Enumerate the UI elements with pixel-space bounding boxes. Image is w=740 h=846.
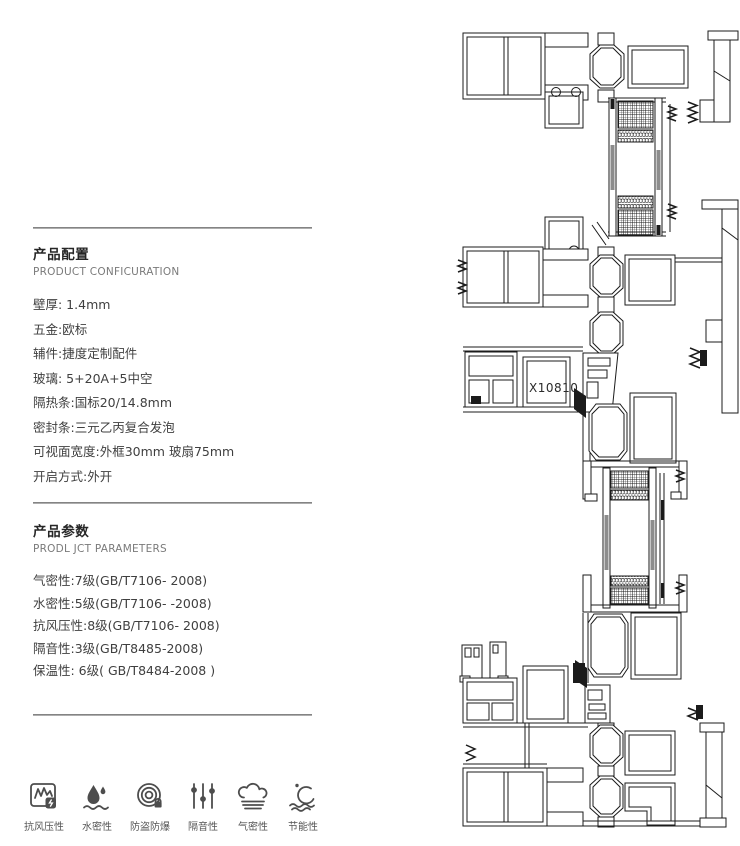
wind-pressure-icon	[27, 779, 61, 813]
glazing-unit-bottom	[583, 461, 687, 612]
feature-air-tightness: 气密性	[236, 779, 270, 833]
param-item-wind-pressure: 抗风压性:8级(GB/T7106- 2008)	[33, 615, 220, 638]
divider-top	[33, 227, 312, 229]
params-list: 气密性:7级(GB/T7106- 2008) 水密性:5级(GB/T7106- …	[33, 570, 220, 683]
divider-middle	[33, 502, 312, 504]
spec-item-glass: 玻璃: 5+20A+5中空	[33, 367, 234, 392]
spec-item-hardware: 五金:欧标	[33, 318, 234, 343]
param-item-heat-insulation: 保温性: 6级( GB/T8484-2008 )	[33, 660, 220, 683]
head-profile-section	[463, 31, 738, 128]
sound-insulation-icon	[186, 779, 220, 813]
window-profile-section-drawing: X10810	[448, 26, 740, 832]
param-item-water-tightness: 水密性:5级(GB/T7106- -2008)	[33, 593, 220, 616]
air-tightness-icon	[236, 779, 270, 813]
feature-label: 隔音性	[188, 818, 218, 833]
sash-bottom-section	[460, 613, 681, 683]
params-section-subtitle: PRODL JCT PARAMETERS	[33, 543, 167, 555]
spec-item-thermal-strip: 隔热条:国标20/14.8mm	[33, 391, 234, 416]
mid-profile-section: X10810	[458, 200, 738, 463]
spec-item-wall-thickness: 壁厚: 1.4mm	[33, 293, 234, 318]
feature-energy-saving: 节能性	[286, 779, 320, 833]
feature-label: 抗风压性	[24, 818, 64, 833]
feature-label: 防盗防爆	[130, 818, 170, 833]
sill-profile-section	[463, 660, 726, 827]
feature-sound-insulation: 隔音性	[186, 779, 220, 833]
feature-icons-row: 抗风压性 水密性 防盗防爆 隔音性	[24, 779, 320, 833]
water-tightness-icon	[80, 779, 114, 813]
feature-label: 节能性	[288, 818, 318, 833]
param-item-sound-insulation: 隔音性:3级(GB/T8485-2008)	[33, 638, 220, 661]
divider-bottom	[33, 714, 312, 716]
params-section-title: 产品参数	[33, 520, 89, 540]
spec-item-visible-width: 可视面宽度:外框30mm 玻扇75mm	[33, 440, 234, 465]
param-item-air-tightness: 气密性:7级(GB/T7106- 2008)	[33, 570, 220, 593]
spec-item-opening-type: 开启方式:外开	[33, 465, 234, 490]
energy-saving-icon	[286, 779, 320, 813]
feature-label: 水密性	[82, 818, 112, 833]
anti-theft-icon	[133, 779, 167, 813]
profile-code-label: X10810	[529, 381, 578, 395]
feature-label: 气密性	[238, 818, 268, 833]
spec-item-accessories: 辅件:捷度定制配件	[33, 342, 234, 367]
config-section-subtitle: PRODUCT CONFICURATION	[33, 266, 179, 278]
config-spec-list: 壁厚: 1.4mm 五金:欧标 辅件:捷度定制配件 玻璃: 5+20A+5中空 …	[33, 293, 234, 489]
feature-anti-theft: 防盗防爆	[130, 779, 170, 833]
feature-water-tightness: 水密性	[80, 779, 114, 833]
glazing-unit-top	[608, 98, 676, 236]
spec-item-seal-strip: 密封条:三元乙丙复合发泡	[33, 416, 234, 441]
feature-wind-pressure: 抗风压性	[24, 779, 64, 833]
config-section-title: 产品配置	[33, 243, 89, 263]
